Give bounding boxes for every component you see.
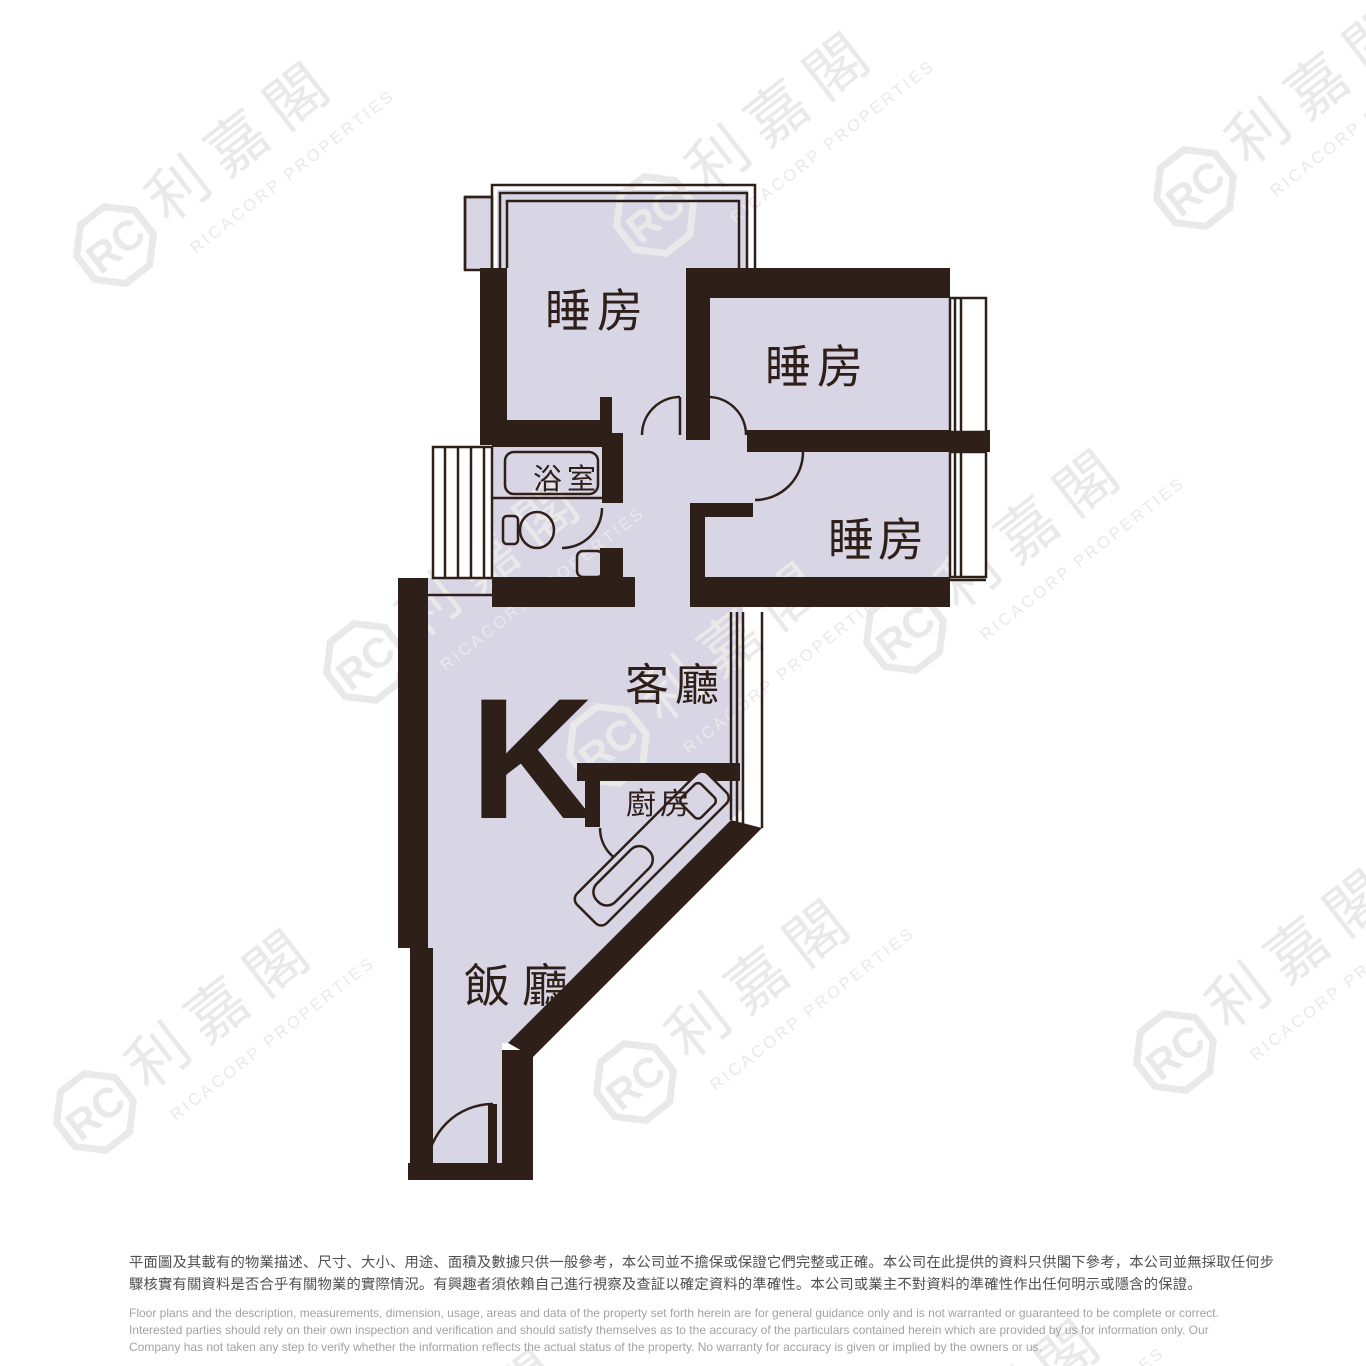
kitchen-label: 廚房 — [626, 788, 694, 821]
watermark — [1122, 830, 1366, 1123]
bay-side-box — [465, 197, 492, 270]
disclaimer-zh-line-2: 驟核實有關資料是否合乎有關物業的實際情況。有興趣者須依賴自己進行視察及查証以確定… — [129, 1274, 1245, 1296]
entrance-door-leaf — [488, 1104, 497, 1170]
living-room-label: 客廳 — [625, 661, 725, 710]
bathroom-label: 浴室 — [533, 463, 601, 496]
wall — [747, 430, 990, 452]
bedroom-3-label: 睡房 — [828, 514, 928, 566]
watermark — [62, 23, 398, 316]
floorplan-drawing: RC 利嘉閣 RICACORP PROPERTIES — [0, 0, 1366, 1366]
kitchen-k-mark: K — [470, 663, 594, 855]
wall — [600, 397, 612, 435]
disclaimer-en-line-3: Company has not taken any step to verify… — [129, 1339, 1245, 1356]
wall — [410, 948, 433, 1180]
bedroom-1-label: 睡房 — [545, 285, 649, 337]
wall — [602, 433, 623, 503]
wall — [686, 268, 950, 298]
watermark — [1142, 0, 1366, 259]
wall — [690, 577, 950, 607]
dining-room-label: 飯廳 — [464, 960, 580, 1012]
wall — [705, 503, 753, 517]
wall — [492, 433, 602, 447]
watermark — [602, 0, 938, 286]
disclaimer-en-block: Floor plans and the description, measure… — [129, 1305, 1245, 1357]
disclaimer-en-line-1: Floor plans and the description, measure… — [129, 1305, 1245, 1322]
disclaimer: 平面圖及其載有的物業描述、尺寸、大小、用途、面積及數據只供一般參考，本公司並不擔… — [129, 1252, 1245, 1357]
bedroom-2-label: 睡房 — [765, 341, 869, 393]
wall — [398, 578, 428, 948]
disclaimer-en-line-2: Interested parties should rely on their … — [129, 1322, 1245, 1339]
floorplan-page: RC 利嘉閣 RICACORP PROPERTIES — [0, 0, 1366, 1366]
wall — [492, 577, 635, 607]
wall — [480, 268, 507, 445]
watermark — [42, 890, 378, 1183]
disclaimer-zh-line-1: 平面圖及其載有的物業描述、尺寸、大小、用途、面積及數據只供一般參考，本公司並不擔… — [129, 1252, 1245, 1274]
wall — [502, 1050, 533, 1180]
wall — [690, 503, 705, 579]
wall — [577, 763, 740, 781]
